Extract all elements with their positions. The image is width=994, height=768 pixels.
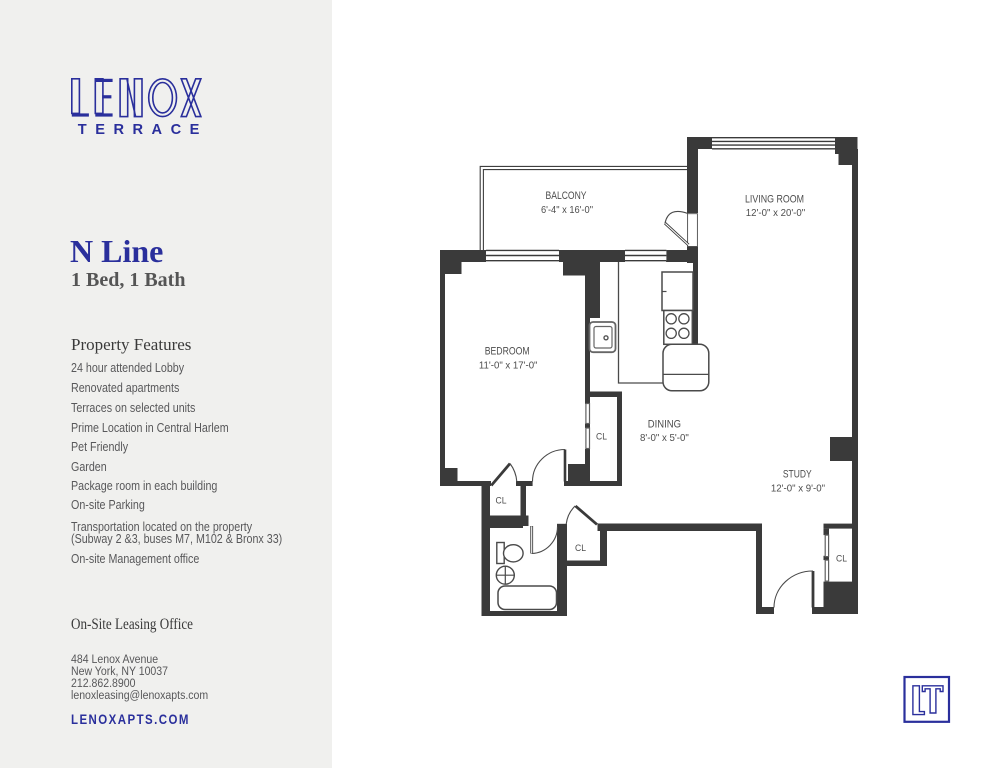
svg-text:11'-0" x 17'-0": 11'-0" x 17'-0" xyxy=(479,361,538,372)
svg-text:LIVING ROOM: LIVING ROOM xyxy=(745,194,804,206)
svg-text:8'-0" x 5'-0": 8'-0" x 5'-0" xyxy=(640,433,689,444)
svg-text:CL: CL xyxy=(575,543,586,554)
svg-text:STUDY: STUDY xyxy=(783,469,812,481)
svg-text:CL: CL xyxy=(836,554,847,565)
svg-text:6'-4" x 16'-0": 6'-4" x 16'-0" xyxy=(541,205,593,216)
svg-text:12'-0" x 20'-0": 12'-0" x 20'-0" xyxy=(746,208,806,219)
svg-text:CL: CL xyxy=(596,432,607,443)
svg-text:12'-0" x 9'-0": 12'-0" x 9'-0" xyxy=(771,484,825,495)
svg-text:BEDROOM: BEDROOM xyxy=(485,346,530,358)
svg-text:CL: CL xyxy=(496,496,507,507)
svg-text:DINING: DINING xyxy=(648,419,681,431)
svg-text:BALCONY: BALCONY xyxy=(546,190,588,202)
